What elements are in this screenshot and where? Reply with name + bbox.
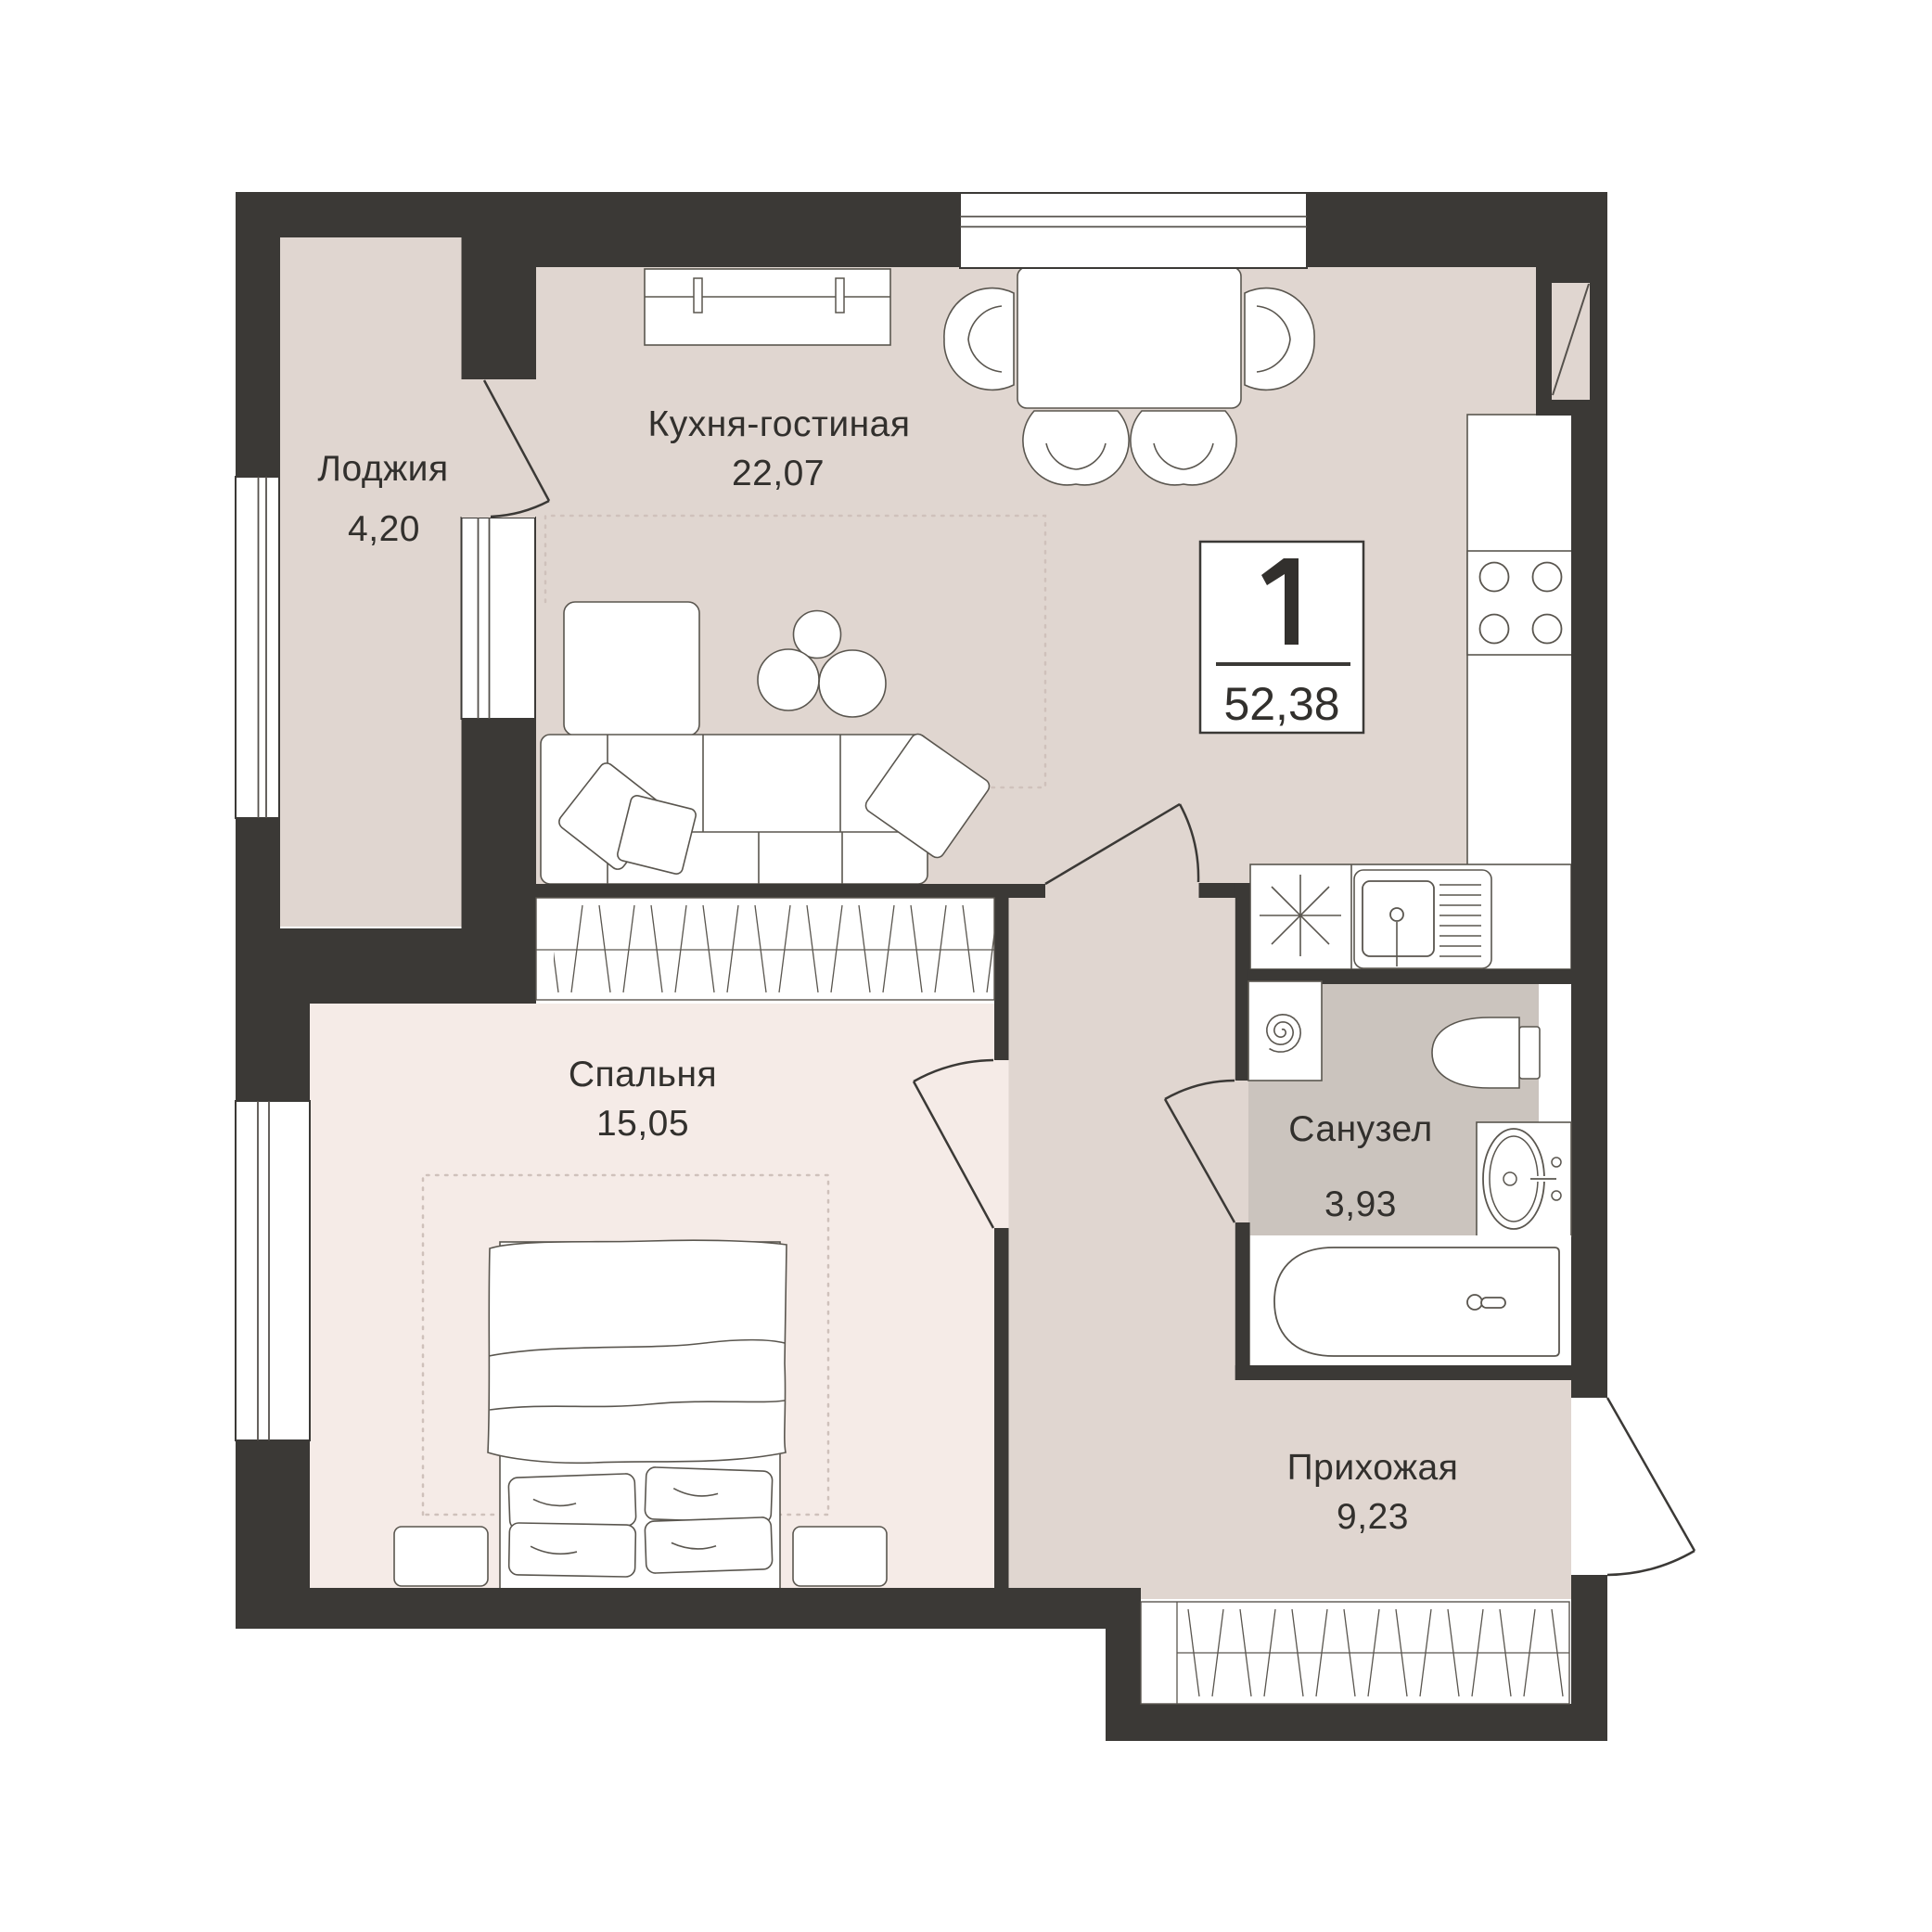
svg-text:3,93: 3,93 xyxy=(1324,1184,1397,1224)
svg-text:Прихожая: Прихожая xyxy=(1287,1448,1459,1488)
svg-text:Санузел: Санузел xyxy=(1288,1109,1432,1149)
svg-text:15,05: 15,05 xyxy=(596,1104,689,1144)
svg-text:Спальня: Спальня xyxy=(569,1055,717,1094)
svg-text:9,23: 9,23 xyxy=(1337,1497,1409,1537)
svg-text:52,38: 52,38 xyxy=(1223,678,1339,730)
svg-text:Лоджия: Лоджия xyxy=(317,449,448,489)
svg-text:Кухня-гостиная: Кухня-гостиная xyxy=(648,404,911,444)
svg-text:22,07: 22,07 xyxy=(732,454,825,493)
svg-text:4,20: 4,20 xyxy=(348,509,420,549)
